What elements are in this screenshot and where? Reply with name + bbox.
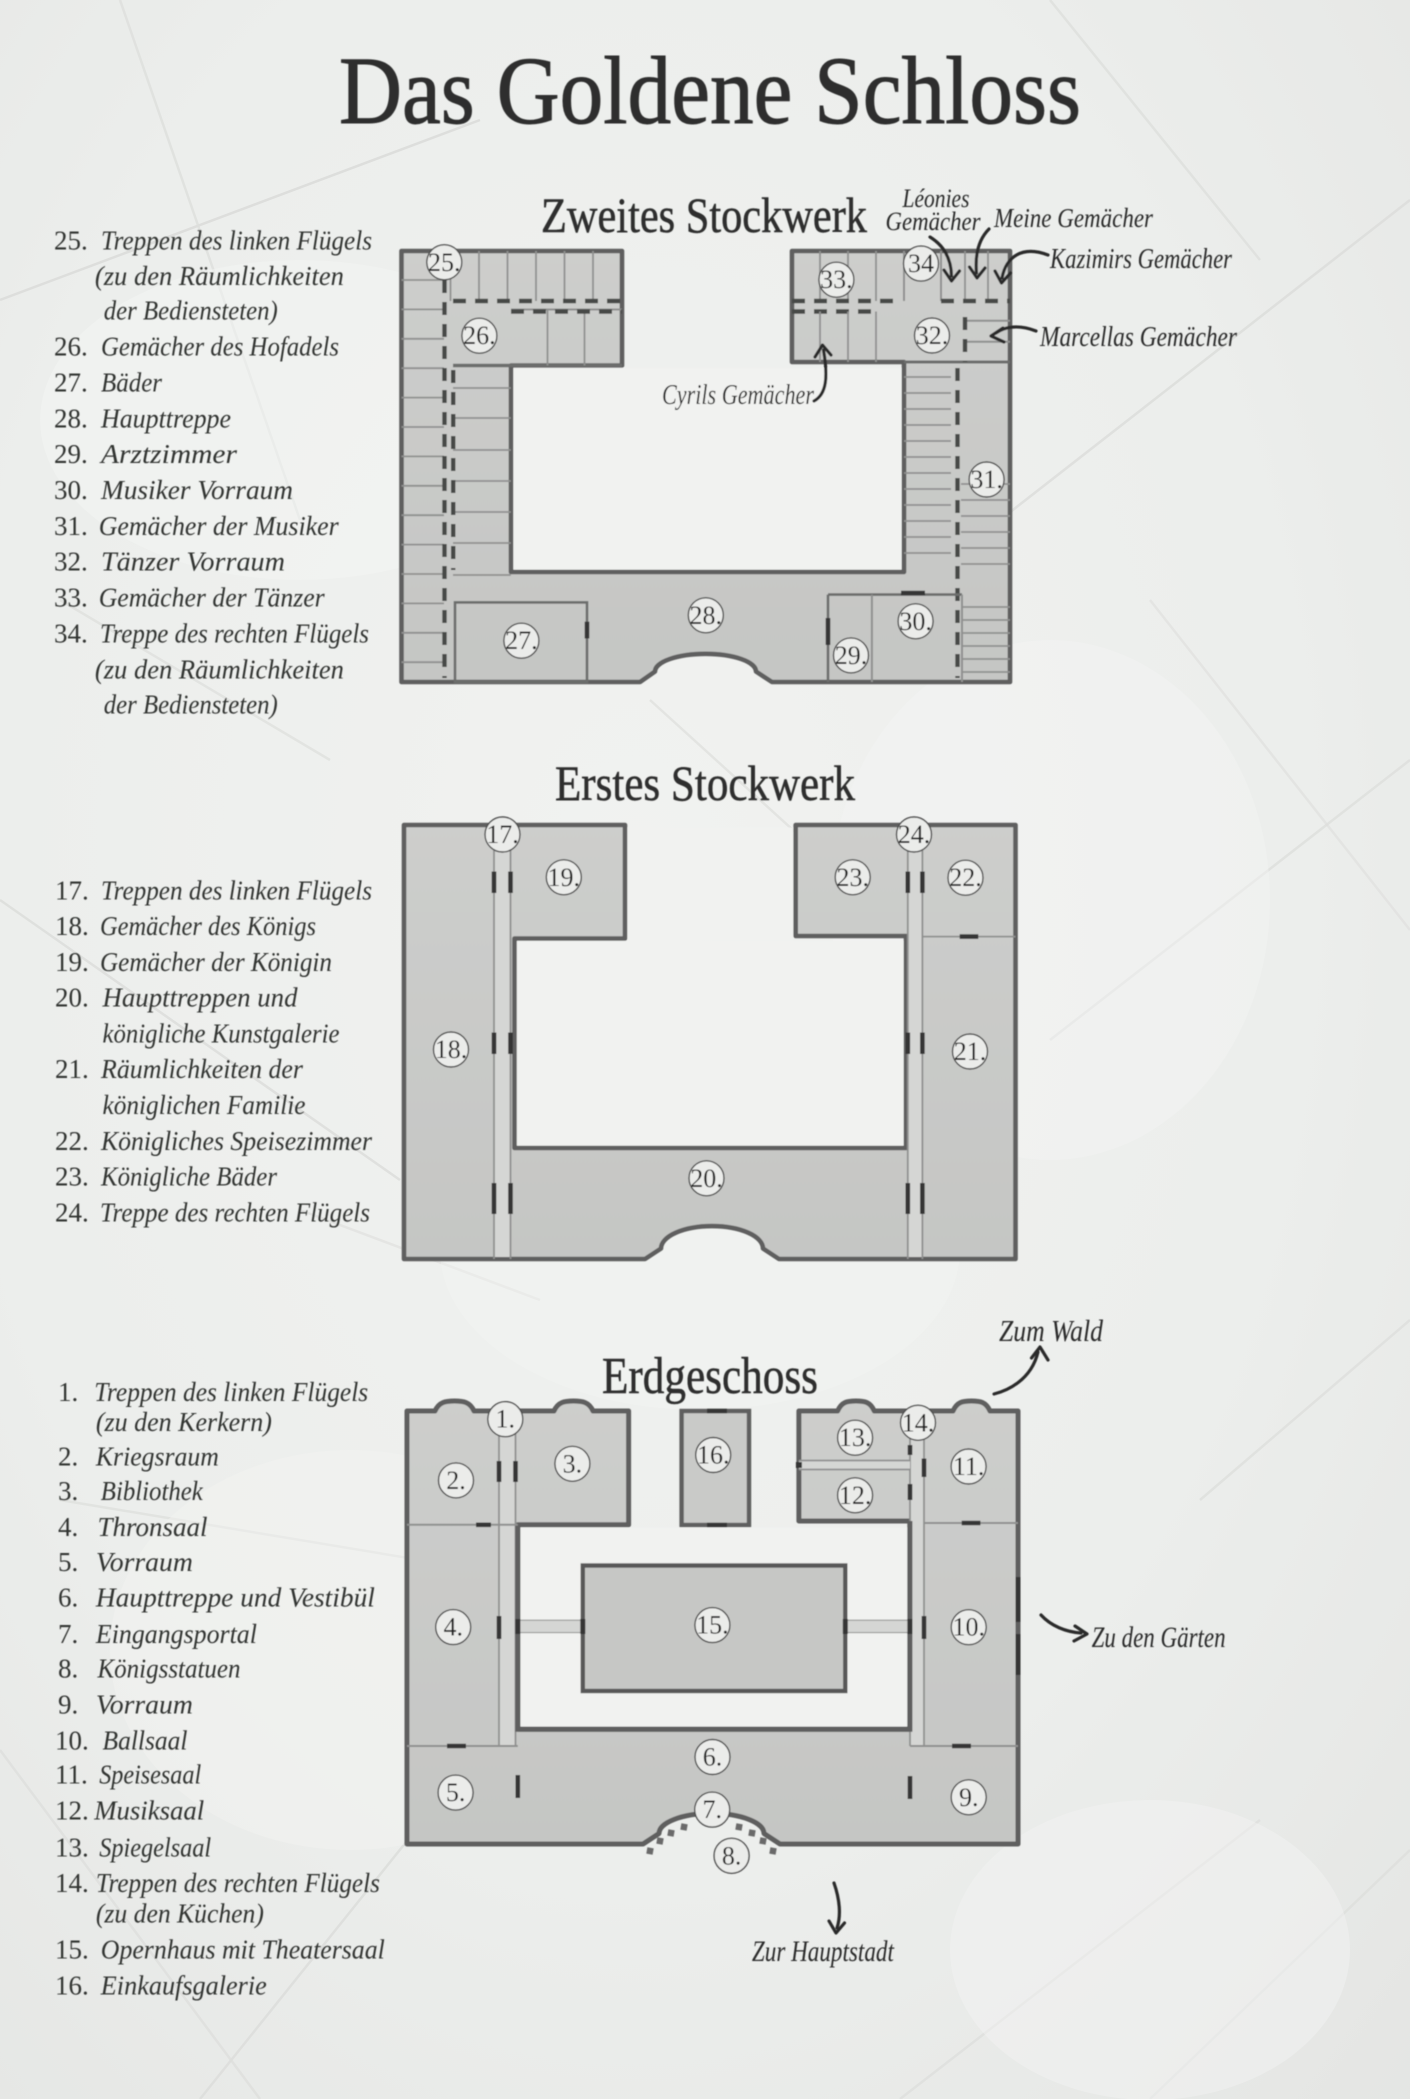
svg-text:25.: 25. [428,248,461,277]
svg-text:28.: 28. [690,601,723,630]
svg-text:Erdgeschoss: Erdgeschoss [602,1348,818,1405]
svg-text:6.: 6. [58,1583,78,1613]
svg-text:17.: 17. [55,875,89,905]
svg-text:30.: 30. [54,475,88,505]
svg-text:23.: 23. [55,1162,89,1192]
svg-text:Spiegelsaal: Spiegelsaal [99,1833,211,1863]
svg-text:34: 34 [908,249,934,278]
svg-text:Das Goldene Schloss: Das Goldene Schloss [339,37,1081,144]
svg-text:Cyrils Gemächer: Cyrils Gemächer [662,380,814,411]
svg-text:23.: 23. [836,863,869,892]
svg-text:24.: 24. [898,820,931,849]
svg-text:33.: 33. [820,265,853,294]
svg-text:32.: 32. [916,321,949,350]
svg-text:1.: 1. [496,1405,516,1434]
svg-text:Musiker Vorraum: Musiker Vorraum [100,475,293,505]
svg-text:Königsstatuen: Königsstatuen [97,1653,241,1683]
svg-text:Treppen des linken Flügels: Treppen des linken Flügels [101,875,372,905]
svg-text:11.: 11. [55,1760,88,1790]
svg-text:33.: 33. [54,582,88,612]
svg-text:3.: 3. [563,1449,583,1478]
svg-text:Vorraum: Vorraum [96,1690,193,1720]
svg-text:18.: 18. [435,1035,468,1064]
svg-text:Zur Hauptstadt: Zur Hauptstadt [752,1935,895,1968]
svg-text:der Bediensteten): der Bediensteten) [104,690,278,720]
svg-text:Gemächer des Hofadels: Gemächer des Hofadels [101,331,339,361]
svg-text:19.: 19. [548,863,581,892]
svg-text:Meine Gemächer: Meine Gemächer [993,203,1153,233]
svg-text:Bäder: Bäder [101,368,162,398]
svg-text:3.: 3. [58,1476,78,1506]
svg-text:29.: 29. [835,641,868,670]
svg-text:27.: 27. [505,626,538,655]
svg-text:20.: 20. [690,1164,723,1193]
svg-text:Thronsaal: Thronsaal [98,1512,208,1542]
svg-text:12.: 12. [839,1481,872,1510]
svg-text:königliche Kunstgalerie: königliche Kunstgalerie [103,1019,340,1049]
svg-text:(zu den Kerkern): (zu den Kerkern) [96,1407,272,1437]
svg-text:Musiksaal: Musiksaal [93,1796,204,1826]
svg-text:Erstes Stockwerk: Erstes Stockwerk [555,755,855,811]
svg-text:Treppen des linken Flügels: Treppen des linken Flügels [94,1377,368,1407]
svg-text:21.: 21. [954,1037,987,1066]
svg-text:13.: 13. [839,1423,872,1452]
svg-text:Bibliothek: Bibliothek [101,1476,204,1506]
svg-text:2.: 2. [446,1466,466,1495]
svg-text:2.: 2. [58,1441,78,1471]
svg-text:24.: 24. [55,1197,89,1227]
svg-text:12.: 12. [55,1796,89,1826]
svg-text:Gemächer der Tänzer: Gemächer der Tänzer [99,582,325,612]
svg-text:Eingangsportal: Eingangsportal [95,1619,257,1649]
svg-text:15.: 15. [55,1934,89,1964]
svg-text:8.: 8. [58,1653,78,1683]
svg-text:28.: 28. [54,403,88,433]
svg-text:Opernhaus mit Theatersaal: Opernhaus mit Theatersaal [101,1934,385,1964]
svg-text:7.: 7. [702,1795,722,1824]
svg-text:30.: 30. [899,607,932,636]
svg-text:Arztzimmer: Arztzimmer [99,439,238,469]
svg-text:20.: 20. [55,983,89,1013]
svg-text:Treppe des rechten Flügels: Treppe des rechten Flügels [100,619,369,649]
svg-text:königlichen Familie: königlichen Familie [103,1090,306,1120]
svg-text:4.: 4. [443,1613,463,1642]
svg-text:Kazimirs Gemächer: Kazimirs Gemächer [1049,244,1232,275]
svg-text:Gemächer des Königs: Gemächer des Königs [100,911,316,941]
svg-text:Zweites Stockwerk: Zweites Stockwerk [541,187,867,243]
svg-text:18.: 18. [55,911,89,941]
svg-text:9.: 9. [58,1690,78,1720]
svg-text:34.: 34. [54,619,88,649]
svg-text:17.: 17. [486,820,519,849]
svg-text:Speisesaal: Speisesaal [99,1760,201,1790]
svg-text:Treppen des linken Flügels: Treppen des linken Flügels [101,225,372,255]
svg-text:16.: 16. [55,1971,89,2001]
svg-text:31.: 31. [970,465,1003,494]
svg-text:9.: 9. [959,1783,979,1812]
svg-text:22.: 22. [949,863,982,892]
svg-text:31.: 31. [54,511,88,541]
svg-text:5.: 5. [58,1547,78,1577]
svg-text:der Bediensteten): der Bediensteten) [104,296,278,326]
svg-text:14.: 14. [55,1868,89,1898]
svg-text:29.: 29. [54,439,88,469]
svg-text:(zu den Räumlichkeiten: (zu den Räumlichkeiten [95,261,344,291]
svg-text:11.: 11. [953,1452,985,1481]
svg-text:21.: 21. [55,1054,89,1084]
svg-text:Tänzer Vorraum: Tänzer Vorraum [101,546,285,576]
svg-text:26.: 26. [463,321,496,350]
svg-text:10.: 10. [952,1613,985,1642]
svg-text:10.: 10. [55,1726,89,1756]
svg-text:Gemächer der Königin: Gemächer der Königin [100,947,332,977]
svg-text:6.: 6. [703,1743,723,1772]
svg-text:Marcellas Gemächer: Marcellas Gemächer [1039,322,1237,353]
svg-text:8.: 8. [722,1841,742,1870]
svg-text:Zum Wald: Zum Wald [999,1313,1103,1348]
svg-text:Vorraum: Vorraum [96,1547,193,1577]
svg-text:Ballsaal: Ballsaal [103,1726,188,1756]
svg-text:25.: 25. [54,225,88,255]
svg-text:Königliche Bäder: Königliche Bäder [100,1162,277,1192]
svg-text:Kriegsraum: Kriegsraum [95,1441,219,1471]
svg-text:Haupttreppe und Vestibül: Haupttreppe und Vestibül [95,1583,375,1613]
svg-text:7.: 7. [58,1619,78,1649]
svg-text:Räumlichkeiten der: Räumlichkeiten der [100,1054,303,1084]
svg-text:32.: 32. [54,546,88,576]
svg-text:Haupttreppe: Haupttreppe [100,403,231,433]
svg-text:1.: 1. [58,1377,78,1407]
svg-text:14.: 14. [902,1408,935,1437]
svg-text:19.: 19. [55,947,89,977]
svg-text:15.: 15. [696,1611,729,1640]
svg-text:Zu den Gärten: Zu den Gärten [1092,1621,1226,1654]
svg-text:26.: 26. [54,331,88,361]
svg-text:Einkaufsgalerie: Einkaufsgalerie [100,1971,267,2001]
svg-text:27.: 27. [54,368,88,398]
svg-text:(zu den Räumlichkeiten: (zu den Räumlichkeiten [95,654,344,684]
svg-text:Treppe des rechten Flügels: Treppe des rechten Flügels [100,1197,370,1227]
svg-text:16.: 16. [697,1441,730,1470]
svg-text:Gemächer der Musiker: Gemächer der Musiker [99,511,339,541]
svg-text:Königliches Speisezimmer: Königliches Speisezimmer [100,1126,372,1156]
svg-text:Treppen des rechten Flügels: Treppen des rechten Flügels [96,1868,380,1898]
svg-text:22.: 22. [55,1126,89,1156]
svg-text:13.: 13. [55,1833,89,1863]
svg-text:5.: 5. [446,1778,466,1807]
svg-text:(zu den Küchen): (zu den Küchen) [96,1898,264,1928]
svg-text:Haupttreppen und: Haupttreppen und [102,983,298,1013]
svg-text:4.: 4. [58,1512,78,1542]
svg-text:Gemächer: Gemächer [886,207,982,236]
